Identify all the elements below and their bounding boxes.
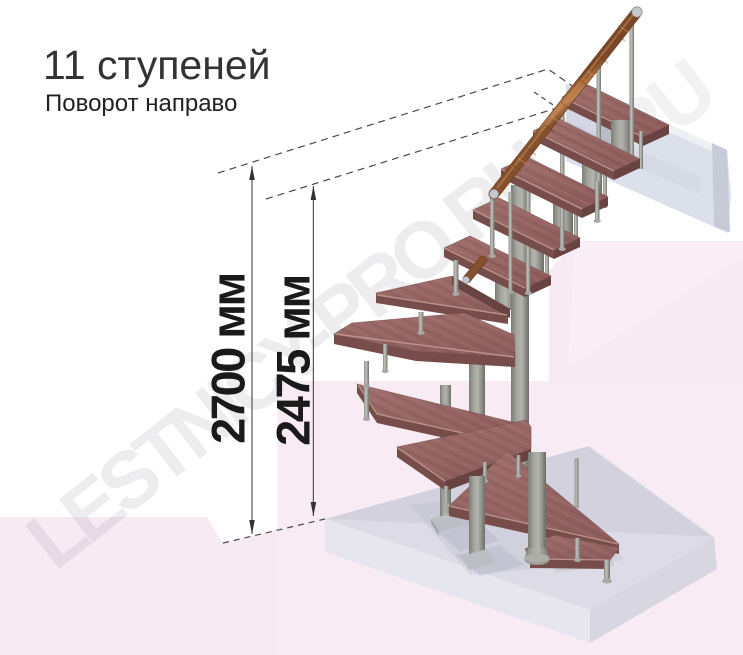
svg-text:11 ступеней: 11 ступеней: [43, 42, 271, 88]
svg-text:2475 мм: 2475 мм: [267, 276, 320, 446]
svg-text:2700 мм: 2700 мм: [202, 274, 255, 444]
svg-text:Поворот направо: Поворот направо: [45, 90, 237, 117]
